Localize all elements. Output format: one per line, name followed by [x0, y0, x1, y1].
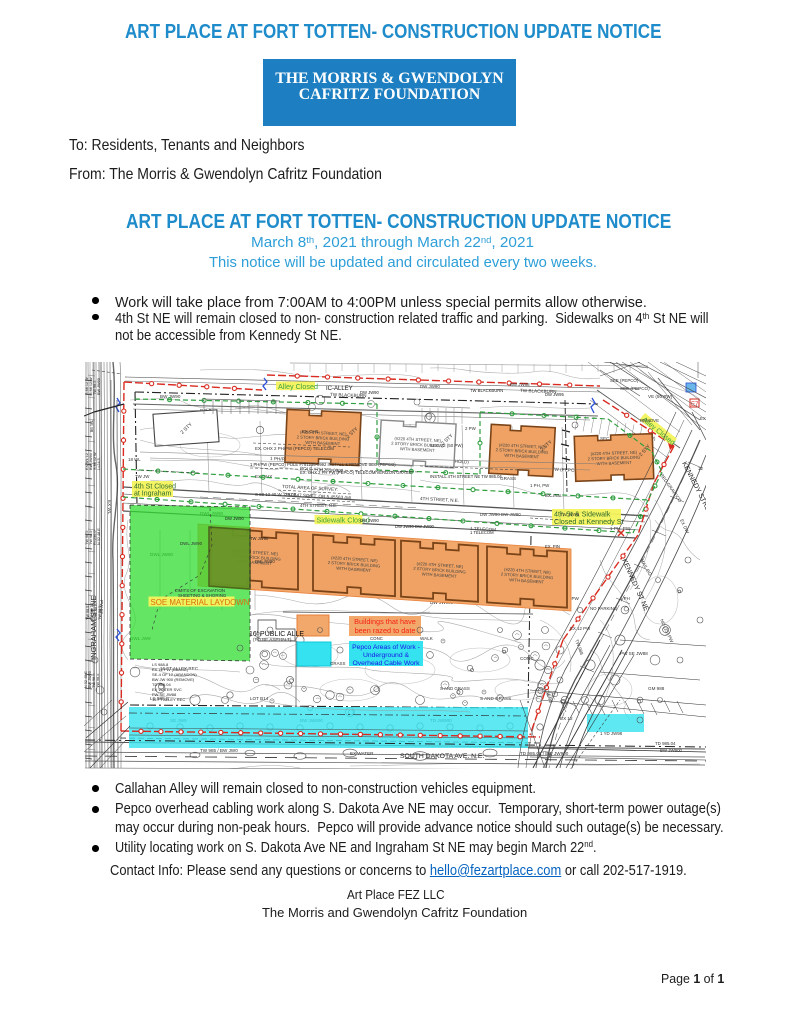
svg-text:SEC V2 (50 PW): SEC V2 (50 PW) [430, 443, 463, 448]
svg-text:Closed at Kennedy St: Closed at Kennedy St [554, 517, 624, 526]
svg-text:EX. PIN: EX. PIN [545, 544, 560, 549]
svg-text:16 FT ALLEY REC: 16 FT ALLEY REC [152, 697, 185, 702]
svg-text:NO PARKING: NO PARKING [590, 606, 618, 611]
svg-text:EX. OHX 2 PH/PW (PEPCO) TELECO: EX. OHX 2 PH/PW (PEPCO) TELECOM [255, 446, 334, 451]
svg-text:TW 988: TW 988 [574, 639, 584, 656]
svg-text:at Ingraham: at Ingraham [134, 491, 172, 498]
svg-text:GRASS: GRASS [330, 661, 345, 666]
svg-text:4th St Closed: 4th St Closed [134, 484, 176, 491]
svg-text:Pepco Areas of Work -: Pepco Areas of Work - [352, 644, 420, 651]
svg-text:EX. PIN: EX. PIN [545, 493, 561, 498]
svg-text:DWL JW90: DWL JW90 [180, 541, 203, 546]
svg-text:1 TELECOM: 1 TELECOM [470, 530, 494, 535]
svg-text:CONC: CONC [520, 656, 534, 661]
svg-text:DW JW90 DW JW90: DW JW90 DW JW90 [395, 524, 435, 529]
svg-text:TW JW: TW JW [135, 474, 150, 479]
svg-text:EX: EX [700, 416, 706, 421]
svg-text:INSTALL 4TH STREET NE TW 985: INSTALL 4TH STREET NE TW 985.04 [430, 474, 502, 479]
svg-text:TW BLACKBURN: TW BLACKBURN [470, 388, 503, 393]
svg-text:1 YD JW98: 1 YD JW98 [600, 731, 623, 736]
svg-text:TW 985 / BW JW0: TW 985 / BW JW0 [200, 748, 238, 753]
svg-text:DW JW90 DW JW90: DW JW90 DW JW90 [480, 512, 521, 517]
svg-text:4TH STREET, N.E.: 4TH STREET, N.E. [300, 503, 337, 508]
svg-text:L=24.5: L=24.5 [97, 458, 101, 470]
svg-text:SOE MATERIAL LAYDOWN: SOE MATERIAL LAYDOWN [151, 598, 250, 607]
svg-text:DW JW90: DW JW90 [360, 518, 380, 523]
svg-text:WALK: WALK [420, 636, 434, 641]
svg-text:S 88 12 40 W 125.00: S 88 12 40 W 125.00 [255, 492, 297, 497]
svg-text:TW JW98: TW JW98 [560, 512, 580, 517]
svg-text:SEE (PEPCO): SEE (PEPCO) [610, 378, 639, 383]
svg-text:12: 12 [698, 466, 703, 471]
svg-text:Alley Closed: Alley Closed [278, 382, 318, 391]
svg-text:S AND GRASS: S AND GRASS [440, 686, 470, 691]
svg-text:REMOVE: REMOVE [640, 418, 659, 423]
svg-text:MAIL BG: MAIL BG [639, 558, 653, 577]
svg-text:BW JW88: BW JW88 [510, 382, 530, 387]
svg-text:DW JW90: DW JW90 [255, 559, 275, 564]
svg-text:LOT B14: LOT B14 [250, 696, 269, 701]
svg-text:SHEETING & SHORING: SHEETING & SHORING [178, 593, 227, 598]
svg-text:BW JW90: BW JW90 [97, 378, 101, 395]
svg-text:BW JW900: BW JW900 [660, 748, 683, 753]
svg-text:Buildings that have: Buildings that have [354, 617, 416, 626]
svg-text:DW JW95: DW JW95 [545, 392, 565, 397]
svg-text:DW JW90: DW JW90 [225, 516, 245, 521]
svg-text:TW JW90: TW JW90 [250, 536, 269, 541]
svg-text:S AND GRASS: S AND GRASS [480, 696, 511, 701]
svg-text:IC-ALLEY: IC-ALLEY [326, 386, 353, 392]
svg-text:TS 98: TS 98 [89, 420, 94, 433]
svg-text:18 WL: 18 WL [128, 457, 141, 462]
svg-text:DW JW90: DW JW90 [360, 390, 380, 395]
svg-text:1 PH: 1 PH [620, 596, 630, 601]
svg-text:1 PH, PW: 1 PH, PW [530, 483, 550, 488]
svg-text:CONC: CONC [370, 636, 383, 641]
svg-text:SEE (PEPCO): SEE (PEPCO) [620, 386, 650, 391]
svg-text:4TH STREET, N.E.: 4TH STREET, N.E. [420, 496, 459, 503]
svg-text:been razed to date: been razed to date [355, 626, 416, 635]
svg-text:Overhead Cable Work: Overhead Cable Work [352, 660, 420, 667]
svg-text:GRASS: GRASS [500, 476, 516, 481]
svg-text:TD 985.04: TD 985.04 [655, 741, 676, 746]
svg-text:N 02 48 E: N 02 48 E [97, 528, 101, 545]
svg-text:EX WATER: EX WATER [350, 751, 374, 756]
svg-text:EX 12 PW: EX 12 PW [570, 626, 591, 631]
svg-text:EX OHX: EX OHX [302, 429, 319, 434]
svg-text:2 PW: 2 PW [465, 426, 477, 431]
svg-text:RED GRAVECO: RED GRAVECO [659, 473, 683, 504]
svg-text:Underground &: Underground & [363, 652, 410, 659]
svg-text:DW JW90: DW JW90 [420, 384, 440, 389]
svg-text:GM 988: GM 988 [648, 686, 665, 691]
